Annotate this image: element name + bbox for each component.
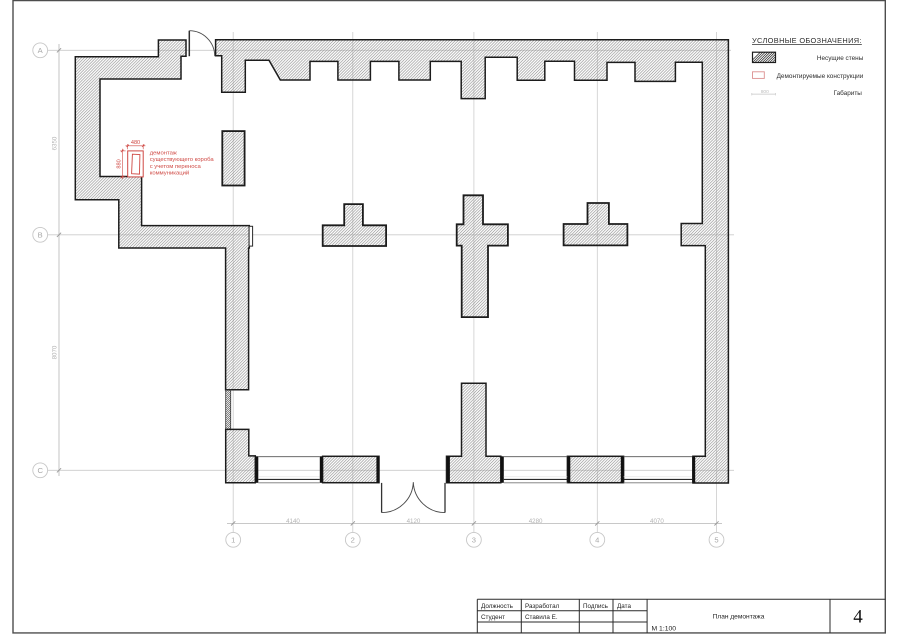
- svg-text:Несущие стены: Несущие стены: [817, 55, 864, 62]
- svg-text:демонтаж: демонтаж: [150, 151, 177, 157]
- svg-text:480: 480: [131, 140, 140, 146]
- svg-text:Дата: Дата: [617, 603, 631, 610]
- svg-text:1: 1: [231, 536, 235, 545]
- svg-text:с учетом переноса: с учетом переноса: [150, 164, 202, 170]
- svg-text:коммуникаций: коммуникаций: [150, 169, 190, 176]
- svg-text:Студент: Студент: [481, 614, 505, 621]
- svg-text:Демонтируемые конструкции: Демонтируемые конструкции: [777, 73, 864, 80]
- svg-text:4120: 4120: [407, 518, 421, 525]
- svg-text:4: 4: [595, 536, 599, 545]
- svg-text:6350: 6350: [52, 136, 59, 150]
- svg-text:C: C: [37, 466, 43, 475]
- svg-text:Габариты: Габариты: [834, 89, 863, 97]
- svg-text:Разработал: Разработал: [525, 602, 560, 610]
- svg-text:8070: 8070: [52, 345, 59, 359]
- svg-text:М 1:100: М 1:100: [652, 626, 677, 633]
- svg-text:2: 2: [351, 536, 355, 545]
- svg-text:4070: 4070: [650, 518, 664, 525]
- svg-text:4140: 4140: [286, 518, 300, 525]
- svg-text:880: 880: [116, 159, 122, 168]
- svg-text:Ставила Е.: Ставила Е.: [525, 614, 558, 621]
- svg-text:Должность: Должность: [481, 603, 514, 610]
- svg-text:существующего короба: существующего короба: [150, 157, 215, 163]
- svg-text:B: B: [38, 231, 43, 240]
- svg-text:Подпись: Подпись: [583, 603, 609, 610]
- svg-text:План демонтажа: План демонтажа: [713, 613, 765, 620]
- svg-text:УСЛОВНЫЕ ОБОЗНАЧЕНИЯ:: УСЛОВНЫЕ ОБОЗНАЧЕНИЯ:: [752, 36, 862, 45]
- svg-text:5: 5: [714, 536, 718, 545]
- svg-text:4280: 4280: [529, 518, 543, 525]
- svg-text:3: 3: [472, 536, 476, 545]
- svg-text:800: 800: [761, 89, 769, 95]
- svg-text:4: 4: [853, 606, 863, 627]
